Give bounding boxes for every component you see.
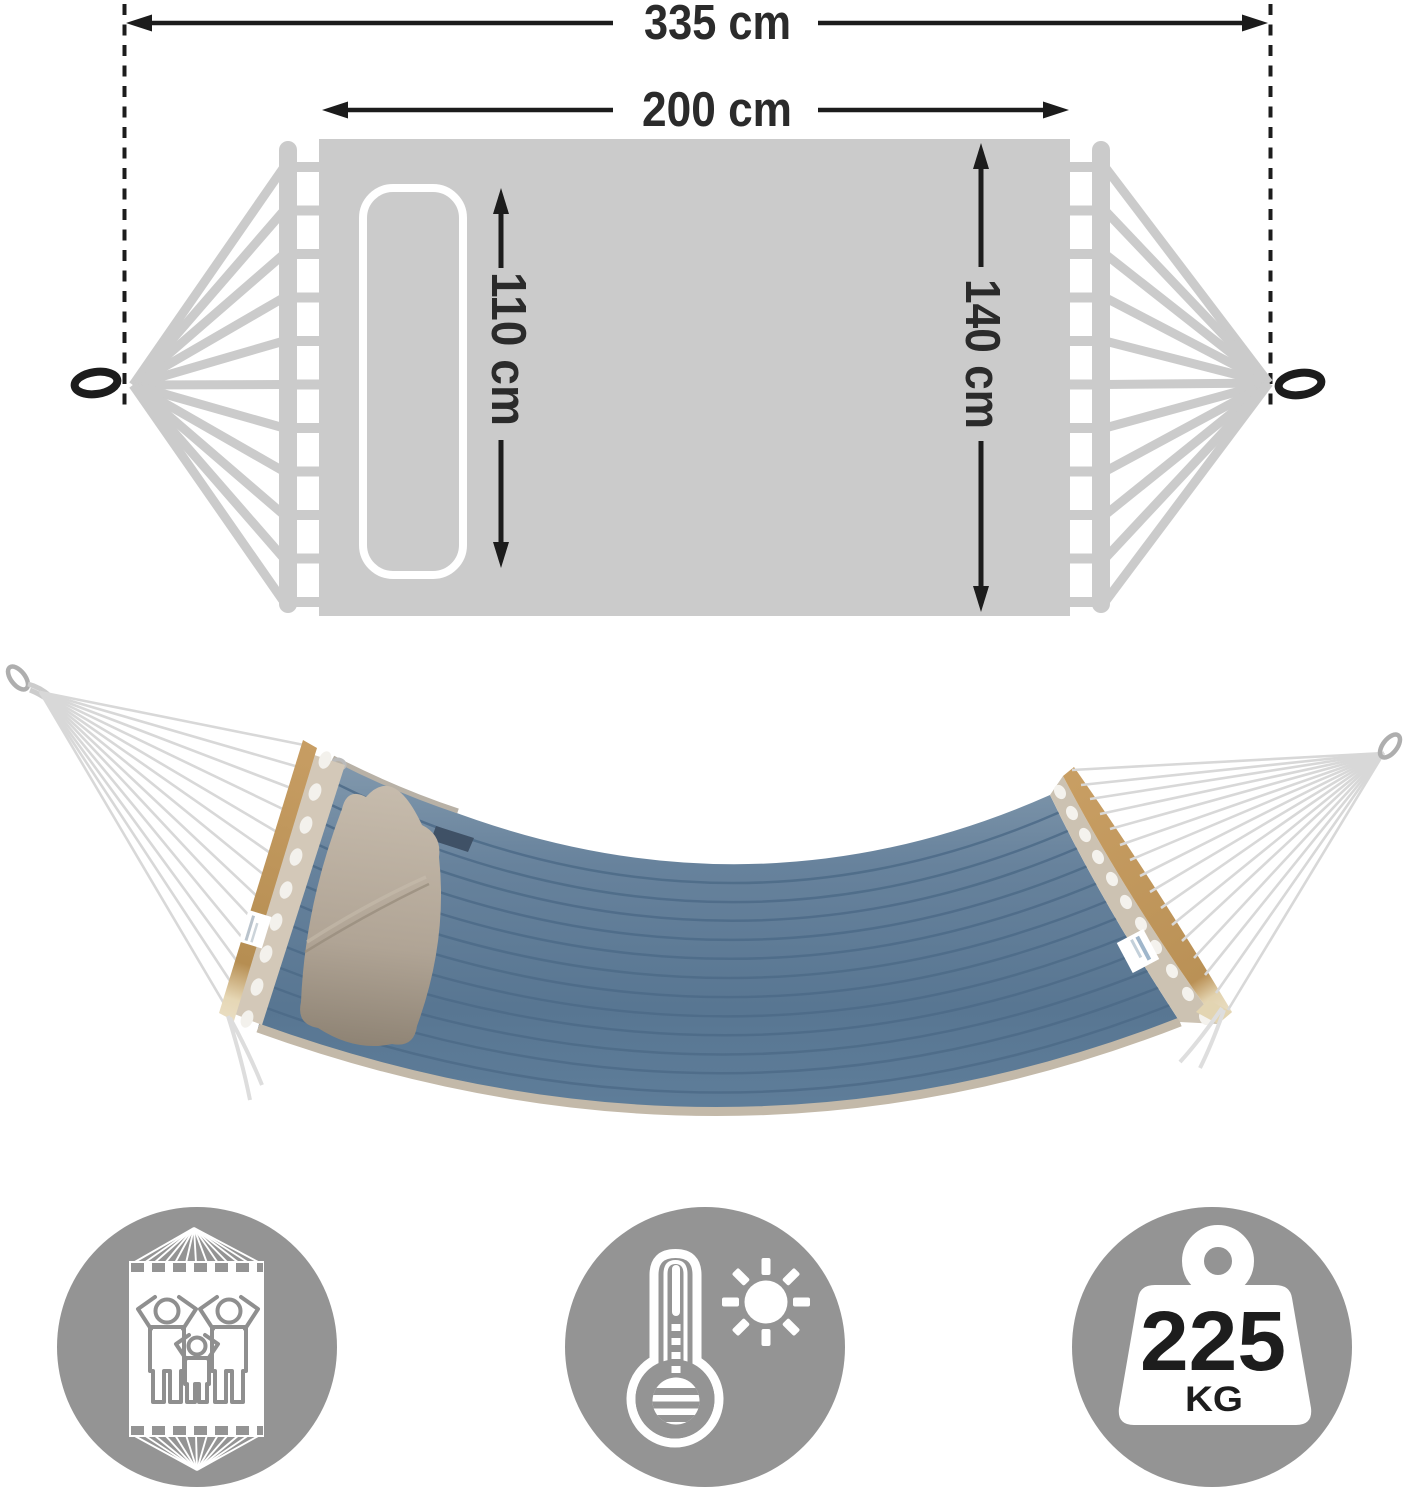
svg-text:140 cm: 140 cm (955, 279, 1009, 429)
svg-text:335 cm: 335 cm (644, 0, 791, 50)
svg-text:110 cm: 110 cm (481, 272, 535, 426)
svg-text:200 cm: 200 cm (642, 83, 792, 137)
svg-text:225: 225 (1140, 1294, 1286, 1388)
svg-text:KG: KG (1185, 1380, 1243, 1419)
